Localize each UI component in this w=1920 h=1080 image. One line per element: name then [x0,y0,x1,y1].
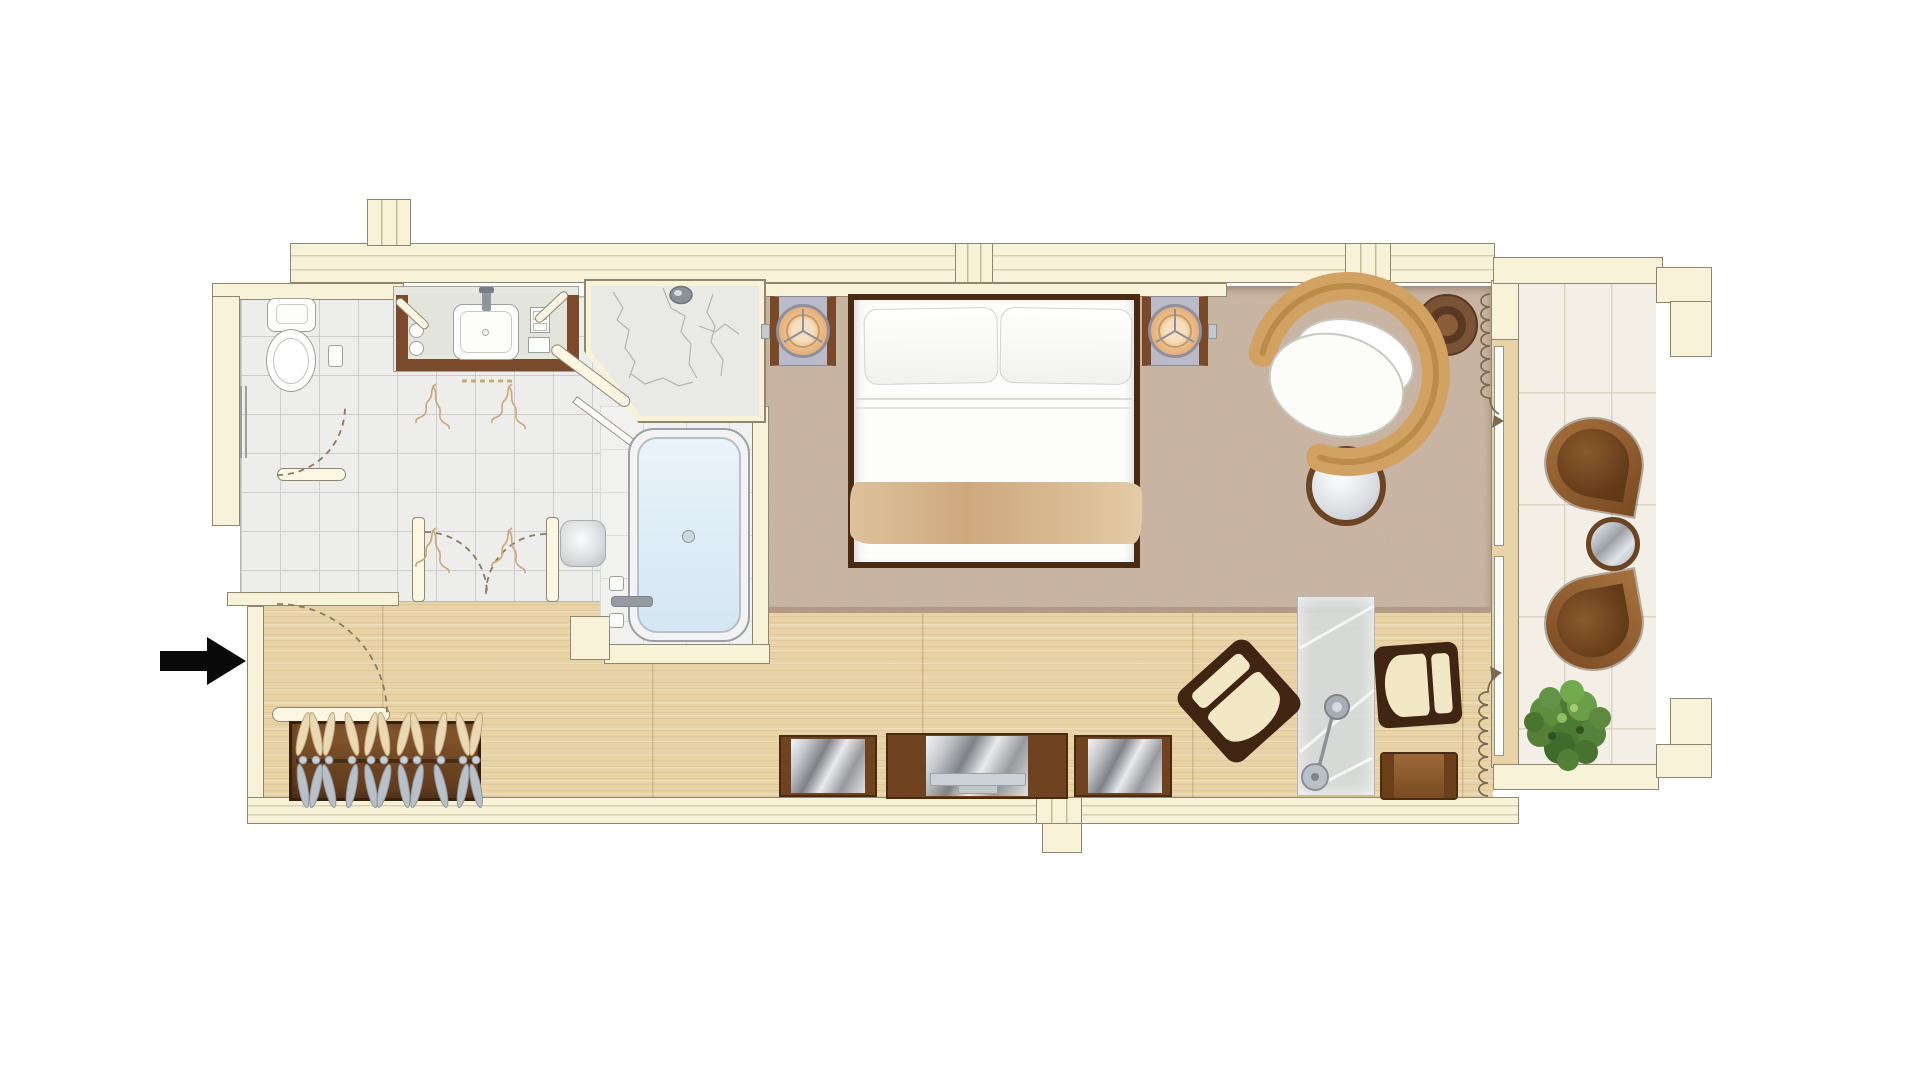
bath-door-swing-right [486,534,546,594]
curtain-top [1481,294,1504,428]
bath-door-swing-left [425,532,487,594]
rattan-armchair [1239,265,1457,483]
lamp-spokes [784,309,1194,342]
entry-door-swing [277,604,387,714]
plan-overlay [0,0,1920,1080]
floor-plan [0,0,1920,1080]
toilet-door-swing [277,407,345,475]
door-swing-arcs [277,407,546,714]
shower-head-icon [670,287,692,304]
hangers [293,712,485,809]
entry-arrow [160,637,246,685]
potted-plant [1524,680,1611,771]
curtain-bottom [1479,666,1502,796]
towel-doodles [416,381,525,573]
